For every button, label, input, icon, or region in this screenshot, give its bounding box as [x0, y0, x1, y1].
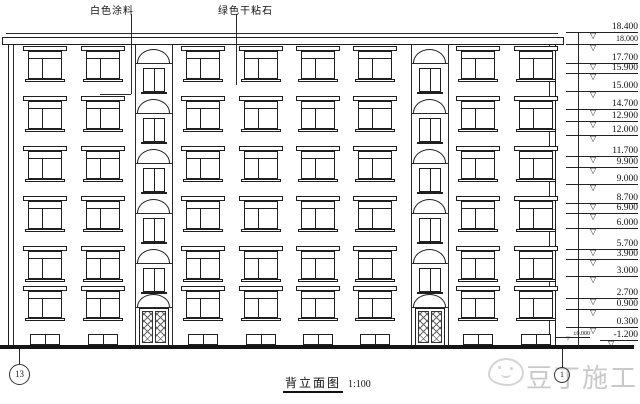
window: [358, 291, 392, 318]
window-transom: [245, 298, 277, 299]
window-transom: [302, 208, 334, 209]
window-sill: [298, 129, 338, 132]
window-sill: [355, 229, 395, 232]
window-sill: [516, 79, 556, 82]
window-mullion: [315, 258, 316, 278]
watermark-text: 豆丁施工: [526, 358, 638, 395]
elevation-value: -1.200: [613, 330, 638, 340]
window-mullion: [200, 158, 201, 178]
material-label-green-stone: 绿色干粘石: [218, 2, 273, 17]
window-mullion: [258, 108, 259, 128]
window-mullion: [42, 58, 43, 78]
elevation-value: 18.400: [612, 22, 638, 32]
window-sill: [83, 229, 123, 232]
window: [28, 151, 62, 179]
stair-window-mullion: [154, 119, 155, 141]
window-transom: [187, 108, 219, 109]
stair-arch-base: [135, 263, 172, 264]
leader-line-green-stone: [236, 14, 237, 85]
window: [186, 291, 220, 318]
window-mullion: [533, 298, 534, 317]
window-transom: [520, 108, 552, 109]
window-mullion: [200, 58, 201, 78]
window: [186, 101, 220, 129]
stair-window: [143, 68, 165, 92]
stair-arch-base: [135, 213, 172, 214]
window-mullion: [475, 298, 476, 317]
elevation-marker: 0.900: [566, 299, 638, 310]
window-mullion: [200, 208, 201, 228]
window-sill: [458, 279, 498, 282]
drawing-scale: 1:100: [348, 379, 371, 390]
window: [186, 51, 220, 79]
elevation-value: 2.700: [617, 288, 638, 298]
window-mullion: [100, 58, 101, 78]
window: [519, 151, 553, 179]
window: [358, 251, 392, 279]
elevation-triangle-icon: [590, 327, 596, 335]
stair-window-mullion: [154, 169, 155, 191]
stair-arch-base: [411, 113, 448, 114]
material-label-white-paint: 白色涂料: [90, 2, 134, 17]
window-transom: [462, 108, 494, 109]
window: [358, 151, 392, 179]
window-mullion: [372, 58, 373, 78]
window-transom: [462, 208, 494, 209]
stair-window-sill: [417, 92, 443, 94]
window-transom: [87, 108, 119, 109]
leader-line-white-paint: [100, 94, 131, 95]
window-transom: [87, 258, 119, 259]
stair-window: [419, 68, 441, 92]
window: [461, 151, 495, 179]
window-mullion: [200, 108, 201, 128]
elevation-value: 6.900: [617, 203, 638, 213]
stair-window: [143, 268, 165, 292]
window-sill: [516, 318, 556, 321]
stair-window-sill: [417, 142, 443, 144]
window: [28, 251, 62, 279]
window-sill: [83, 179, 123, 182]
stair-window-mullion: [430, 169, 431, 191]
window: [519, 251, 553, 279]
elevation-value: ±0.000: [573, 331, 590, 337]
stair-arch-base: [411, 263, 448, 264]
drawing-title-block: 背立面图1:100: [283, 374, 371, 391]
window-transom: [359, 208, 391, 209]
window-mullion: [200, 298, 201, 317]
window-sill: [25, 129, 65, 132]
stair-window-mullion: [154, 269, 155, 291]
window-mullion: [100, 208, 101, 228]
window-transom: [87, 298, 119, 299]
window-sill: [183, 79, 223, 82]
elevation-value: 9.900: [617, 157, 638, 167]
window: [358, 51, 392, 79]
window-sill: [25, 229, 65, 232]
window-mullion: [315, 158, 316, 178]
window-sill: [241, 318, 281, 321]
stair-window: [143, 218, 165, 242]
elevation-marker: 18.400: [566, 22, 638, 33]
window-mullion: [475, 108, 476, 128]
window: [358, 201, 392, 229]
stair-window-mullion: [430, 219, 431, 241]
window-transom: [462, 258, 494, 259]
window-mullion: [200, 258, 201, 278]
window-sill: [241, 129, 281, 132]
window-sill: [25, 79, 65, 82]
elevation-triangle-icon: [590, 73, 596, 81]
elevation-marker: 3.900: [566, 249, 638, 260]
drawing-title: 背立面图: [283, 376, 343, 393]
stair-window-mullion: [154, 219, 155, 241]
window-sill: [241, 279, 281, 282]
window-mullion: [533, 208, 534, 228]
window-mullion: [42, 108, 43, 128]
window-mullion: [315, 58, 316, 78]
window: [461, 51, 495, 79]
entrance-door: [139, 308, 169, 346]
window: [301, 291, 335, 318]
window-mullion: [372, 208, 373, 228]
window-mullion: [475, 158, 476, 178]
axis-line: [19, 349, 20, 364]
window: [86, 151, 120, 179]
window: [301, 101, 335, 129]
window: [28, 51, 62, 79]
stair-window: [419, 218, 441, 242]
stair-window-sill: [141, 242, 167, 244]
elevation-triangle-icon: [608, 340, 614, 348]
stair-arch-base: [411, 63, 448, 64]
window: [244, 201, 278, 229]
elevation-triangle-icon: [590, 135, 596, 143]
window: [86, 101, 120, 129]
window-transom: [187, 158, 219, 159]
window: [461, 101, 495, 129]
stair-window: [419, 168, 441, 192]
window-sill: [298, 229, 338, 232]
window-sill: [458, 229, 498, 232]
window-transom: [462, 58, 494, 59]
window-mullion: [100, 298, 101, 317]
window-transom: [520, 208, 552, 209]
window-transom: [359, 298, 391, 299]
stair-arch-base: [135, 113, 172, 114]
window: [244, 291, 278, 318]
window-sill: [241, 229, 281, 232]
window-mullion: [100, 258, 101, 278]
window-transom: [245, 108, 277, 109]
window-mullion: [100, 108, 101, 128]
basement-window: [463, 334, 493, 345]
window-transom: [462, 298, 494, 299]
window-transom: [520, 258, 552, 259]
elevation-value: 6.000: [617, 218, 638, 228]
window-sill: [183, 318, 223, 321]
window-mullion: [100, 158, 101, 178]
elevation-triangle-icon: [590, 91, 596, 99]
window: [244, 251, 278, 279]
window: [28, 101, 62, 129]
window-transom: [187, 258, 219, 259]
window-sill: [83, 129, 123, 132]
basement-window: [88, 334, 118, 345]
elevation-value: 8.700: [617, 193, 638, 203]
stair-window-sill: [417, 242, 443, 244]
elevation-value: 3.000: [617, 266, 638, 276]
window-sill: [25, 179, 65, 182]
elevation-value: 12.000: [612, 125, 638, 135]
window-mullion: [258, 208, 259, 228]
elevation-value: 15.000: [612, 81, 638, 91]
window-mullion: [533, 158, 534, 178]
stair-bay-line: [411, 45, 412, 346]
basement-window: [30, 334, 60, 345]
window-sill: [83, 279, 123, 282]
window-sill: [355, 129, 395, 132]
window-mullion: [42, 298, 43, 317]
window-transom: [462, 158, 494, 159]
window-transom: [359, 158, 391, 159]
stair-window: [419, 268, 441, 292]
window: [28, 291, 62, 318]
window-mullion: [372, 158, 373, 178]
stair-window-mullion: [430, 269, 431, 291]
window: [461, 291, 495, 318]
window: [186, 251, 220, 279]
window-mullion: [372, 108, 373, 128]
elevation-marker: 3.000: [566, 266, 638, 277]
elevation-marker: 12.000: [566, 125, 638, 136]
window: [244, 101, 278, 129]
elevation-value: 12.900: [612, 111, 638, 121]
window-mullion: [315, 298, 316, 317]
window-transom: [245, 258, 277, 259]
window-transom: [29, 208, 61, 209]
stair-window: [419, 118, 441, 142]
elevation-marker: 12.900: [566, 111, 638, 122]
window-transom: [245, 158, 277, 159]
stair-window-mullion: [430, 119, 431, 141]
material-label-text: 白色涂料: [90, 6, 134, 17]
stair-window-sill: [141, 142, 167, 144]
elevation-marker: 11.700: [566, 146, 638, 157]
elevation-value: 17.700: [612, 53, 638, 63]
window: [86, 251, 120, 279]
elevation-value: 9.000: [617, 174, 638, 184]
stair-window-sill: [141, 92, 167, 94]
axis-number: 1: [560, 370, 564, 379]
elevation-marker: 15.900: [566, 63, 638, 74]
window-transom: [187, 298, 219, 299]
window: [244, 151, 278, 179]
window-sill: [241, 79, 281, 82]
window-transom: [359, 108, 391, 109]
window-mullion: [533, 58, 534, 78]
elevation-triangle-icon: [590, 44, 596, 52]
stair-arch-base: [135, 163, 172, 164]
window: [358, 101, 392, 129]
stair-arch-base: [411, 163, 448, 164]
window-sill: [83, 318, 123, 321]
window-transom: [520, 158, 552, 159]
window-sill: [241, 179, 281, 182]
stair-bay-line: [135, 45, 136, 346]
window-mullion: [42, 258, 43, 278]
window: [86, 291, 120, 318]
stair-window: [143, 168, 165, 192]
window: [28, 201, 62, 229]
window: [461, 251, 495, 279]
stair-bay-line: [172, 45, 173, 346]
axis-bubble-13: 13: [9, 364, 30, 385]
window-sill: [516, 129, 556, 132]
elevation-marker: 15.000: [566, 81, 638, 92]
axis-number: 13: [15, 369, 24, 379]
basement-window: [246, 334, 276, 345]
window-transom: [302, 108, 334, 109]
window-mullion: [315, 208, 316, 228]
window-transom: [87, 208, 119, 209]
window-sill: [458, 129, 498, 132]
window-sill: [458, 179, 498, 182]
elevation-value: 15.900: [612, 63, 638, 73]
window-mullion: [258, 298, 259, 317]
window-transom: [302, 258, 334, 259]
window-sill: [25, 279, 65, 282]
elevation-marker: 9.000: [566, 174, 638, 185]
window-transom: [302, 298, 334, 299]
window-sill: [355, 279, 395, 282]
window: [461, 201, 495, 229]
window: [301, 51, 335, 79]
stair-arch-base: [411, 213, 448, 214]
window: [519, 291, 553, 318]
basement-window: [360, 334, 390, 345]
window-sill: [298, 279, 338, 282]
window-mullion: [533, 258, 534, 278]
material-label-text: 绿色干粘石: [218, 6, 273, 17]
window-transom: [29, 298, 61, 299]
elevation-marker: 2.700: [566, 288, 638, 299]
elevation-marker: 6.900: [566, 203, 638, 214]
window-mullion: [258, 158, 259, 178]
window-transom: [29, 258, 61, 259]
window-sill: [458, 318, 498, 321]
stair-window-sill: [141, 192, 167, 194]
elevation-triangle-icon: [566, 337, 570, 342]
window-sill: [355, 79, 395, 82]
building-facade: [0, 0, 640, 404]
elevation-triangle-icon: [590, 184, 596, 192]
window-sill: [183, 279, 223, 282]
elevation-marker-basement: -1.200: [600, 330, 638, 341]
window: [519, 101, 553, 129]
window-transom: [187, 58, 219, 59]
window-sill: [183, 179, 223, 182]
window-transom: [359, 258, 391, 259]
entrance-door: [415, 308, 445, 346]
leader-line-white-paint: [131, 14, 132, 94]
elevation-value: 11.700: [612, 146, 638, 156]
basement-window: [188, 334, 218, 345]
window-mullion: [475, 58, 476, 78]
ground-line: [0, 345, 634, 349]
window: [86, 51, 120, 79]
window-transom: [87, 58, 119, 59]
window-mullion: [372, 298, 373, 317]
window-transom: [302, 58, 334, 59]
window: [301, 251, 335, 279]
window-transom: [520, 298, 552, 299]
elevation-value: 18.000: [616, 34, 638, 43]
watermark-mascot-icon: [488, 358, 524, 386]
window-mullion: [475, 258, 476, 278]
window: [301, 151, 335, 179]
window-transom: [29, 108, 61, 109]
stair-bay-line: [448, 45, 449, 346]
elevation-triangle-icon: [590, 309, 596, 317]
window-sill: [298, 79, 338, 82]
elevation-marker-zero: ±0.000: [556, 331, 590, 338]
window: [186, 151, 220, 179]
stair-arch-base: [135, 63, 172, 64]
window-mullion: [258, 58, 259, 78]
window-sill: [298, 179, 338, 182]
door-leaf: [142, 311, 153, 343]
elevation-value: 0.300: [617, 317, 638, 327]
window-transom: [245, 58, 277, 59]
axis-bubble-1: 1: [554, 367, 570, 383]
elevation-value: 5.700: [617, 239, 638, 249]
elevation-value: 0.900: [617, 299, 638, 309]
door-leaf: [418, 311, 429, 343]
window: [519, 51, 553, 79]
window-transom: [359, 58, 391, 59]
window-transom: [520, 58, 552, 59]
window: [519, 201, 553, 229]
elevation-marker: 14.700: [566, 99, 638, 110]
door-leaf: [431, 311, 442, 343]
window: [86, 201, 120, 229]
window-sill: [516, 179, 556, 182]
window-sill: [183, 229, 223, 232]
window: [186, 201, 220, 229]
window-sill: [25, 318, 65, 321]
basement-window: [303, 334, 333, 345]
window-transom: [29, 158, 61, 159]
window-sill: [516, 229, 556, 232]
cornice-band: [2, 37, 564, 45]
stair-window: [143, 118, 165, 142]
window: [244, 51, 278, 79]
window-mullion: [533, 108, 534, 128]
window-transom: [302, 158, 334, 159]
window-sill: [458, 79, 498, 82]
window-transom: [187, 208, 219, 209]
window-transom: [29, 58, 61, 59]
window-sill: [298, 318, 338, 321]
window-mullion: [42, 208, 43, 228]
elevation-value: 3.900: [617, 249, 638, 259]
elevation-drawing: 白色涂料 绿色干粘石 18.400 18.000 17.700 15.900 1…: [0, 0, 640, 404]
elevation-marker: 9.900: [566, 157, 638, 168]
window: [301, 201, 335, 229]
elevation-value: 14.700: [612, 99, 638, 109]
basement-window: [521, 334, 551, 345]
